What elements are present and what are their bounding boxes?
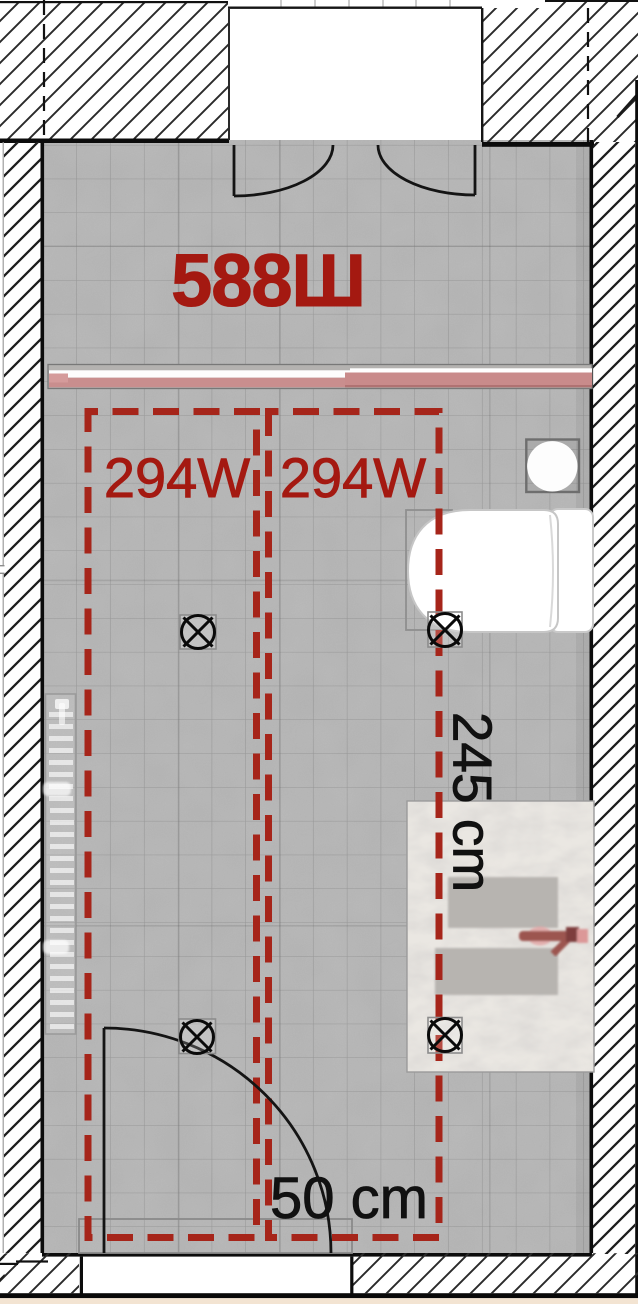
svg-text:294W: 294W <box>104 446 250 509</box>
svg-text:294W: 294W <box>280 446 426 509</box>
svg-text:588Ш: 588Ш <box>171 239 365 322</box>
svg-text:245 cm: 245 cm <box>442 712 504 892</box>
svg-text:50 cm: 50 cm <box>270 1166 428 1231</box>
